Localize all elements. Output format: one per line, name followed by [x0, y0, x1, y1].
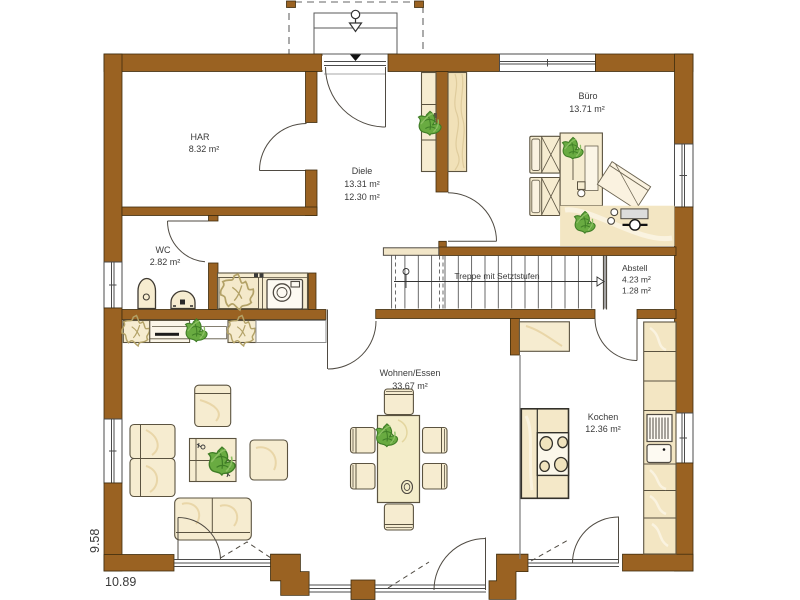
svg-text:2.82 m²: 2.82 m²: [150, 257, 181, 267]
svg-text:HAR: HAR: [190, 132, 210, 142]
svg-text:13.71 m²: 13.71 m²: [569, 104, 605, 114]
svg-text:13.31 m²: 13.31 m²: [344, 179, 380, 189]
svg-text:8.32 m²: 8.32 m²: [189, 144, 220, 154]
svg-text:4.23 m²: 4.23 m²: [622, 275, 651, 285]
svg-text:Diele: Diele: [352, 166, 373, 176]
svg-text:12.36 m²: 12.36 m²: [585, 424, 621, 434]
svg-text:9.58: 9.58: [88, 529, 102, 553]
svg-text:Kochen: Kochen: [588, 412, 619, 422]
svg-text:Abstell: Abstell: [622, 263, 648, 273]
svg-text:Treppe mit Setztstufen: Treppe mit Setztstufen: [454, 271, 539, 281]
svg-text:Wohnen/Essen: Wohnen/Essen: [380, 368, 441, 378]
svg-text:1.28 m²: 1.28 m²: [622, 286, 651, 296]
svg-text:12.30 m²: 12.30 m²: [344, 192, 380, 202]
svg-text:WC: WC: [156, 245, 171, 255]
svg-text:10.89: 10.89: [105, 575, 136, 589]
svg-text:33.67 m²: 33.67 m²: [392, 381, 428, 391]
svg-text:Büro: Büro: [578, 91, 597, 101]
